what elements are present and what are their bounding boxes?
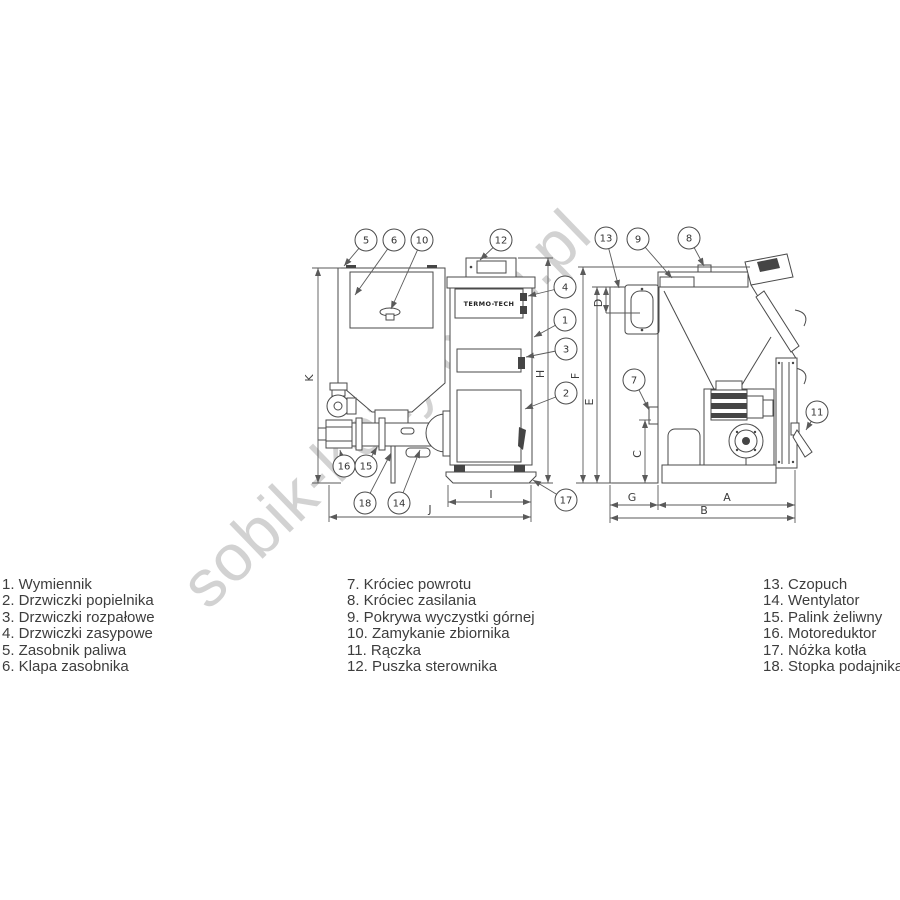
feeder-leg (391, 446, 395, 483)
callout-15: 15 (355, 447, 377, 477)
part-item-3: 3. Drzwiczki rozpałowe (2, 610, 155, 626)
callout-1: 1 (534, 309, 576, 337)
callout-13: 13 (595, 227, 619, 288)
dim-label-D: D (592, 299, 605, 307)
part-item-13: 13. Czopuch (763, 577, 900, 593)
part-item-14: 14. Wentylator (763, 593, 900, 609)
dim-label-H: H (534, 370, 547, 378)
fan-impeller (729, 424, 763, 458)
svg-text:17: 17 (560, 496, 573, 507)
brand-label: TERMO-TECH (464, 300, 515, 308)
boiler-foot (454, 465, 465, 472)
svg-text:9: 9 (635, 235, 641, 246)
svg-text:3: 3 (563, 345, 569, 356)
svg-text:18: 18 (359, 499, 372, 510)
part-item-1: 1. Wymiennik (2, 577, 155, 593)
svg-text:11: 11 (811, 408, 824, 419)
sloped-door (756, 291, 799, 352)
svg-text:6: 6 (391, 236, 397, 247)
dim-label-F: F (569, 373, 582, 379)
control-panel (745, 254, 793, 285)
supply-stub (698, 265, 711, 272)
parts-list-column-3: 13. Czopuch14. Wentylator15. Palink żeli… (763, 577, 900, 675)
svg-text:2: 2 (563, 389, 569, 400)
part-item-4: 4. Drzwiczki zasypowe (2, 626, 155, 642)
dim-label-I: I (489, 488, 492, 501)
boiler-side-view (610, 254, 812, 483)
cleanout-cover (660, 277, 694, 287)
svg-text:15: 15 (360, 462, 373, 473)
callout-11: 11 (806, 401, 828, 430)
fuel-hopper (338, 268, 445, 412)
boiler-foot (514, 465, 525, 472)
callout-12: 12 (480, 229, 512, 260)
dim-label-E: E (583, 398, 596, 405)
parts-list-column-1: 1. Wymiennik2. Drzwiczki popielnika3. Dr… (2, 577, 155, 675)
part-item-9: 9. Pokrywa wyczystki górnej (347, 610, 535, 626)
svg-text:1: 1 (562, 316, 568, 327)
svg-text:13: 13 (600, 234, 613, 245)
controller-box (466, 258, 516, 277)
fan-motor (711, 381, 773, 420)
parts-list-column-2: 7. Króciec powrotu8. Króciec zasilania9.… (347, 577, 535, 675)
part-item-8: 8. Króciec zasilania (347, 593, 535, 609)
dim-label-K: K (303, 374, 316, 382)
svg-text:16: 16 (338, 462, 351, 473)
svg-text:7: 7 (631, 376, 637, 387)
boiler-top-band (447, 277, 535, 288)
part-item-7: 7. Króciec powrotu (347, 577, 535, 593)
svg-text:4: 4 (562, 283, 568, 294)
return-connector (649, 407, 658, 424)
part-item-12: 12. Puszka sterownika (347, 659, 535, 675)
callout-5: 5 (344, 229, 377, 266)
svg-text:10: 10 (416, 236, 429, 247)
side-base (662, 465, 776, 483)
callout-2: 2 (525, 382, 577, 409)
part-item-2: 2. Drzwiczki popielnika (2, 593, 155, 609)
front-door-frame (776, 358, 797, 468)
callout-9: 9 (627, 228, 672, 278)
boiler-base (446, 472, 536, 483)
dim-label-C: C (631, 450, 644, 458)
chimney-flue (625, 285, 659, 334)
part-item-18: 18. Stopka podajnika (763, 659, 900, 675)
svg-text:5: 5 (363, 236, 369, 247)
boiler-spec-page: sobik-kotly.com.pl (0, 0, 900, 900)
part-item-17: 17. Nóżka kotła (763, 643, 900, 659)
dim-label-B: B (700, 504, 708, 517)
svg-text:14: 14 (393, 499, 406, 510)
svg-text:12: 12 (495, 236, 508, 247)
part-item-5: 5. Zasobnik paliwa (2, 643, 155, 659)
callout-17: 17 (533, 480, 577, 511)
dim-label-G: G (628, 491, 637, 504)
part-item-15: 15. Palink żeliwny (763, 610, 900, 626)
dim-label-J: J (427, 503, 431, 516)
callout-3: 3 (526, 338, 577, 360)
part-item-11: 11. Rączka (347, 643, 535, 659)
part-item-16: 16. Motoreduktor (763, 626, 900, 642)
dim-label-A: A (723, 491, 731, 504)
svg-text:8: 8 (686, 234, 692, 245)
boiler-front-view: TERMO-TECH (318, 258, 536, 483)
callout-16: 16 (333, 450, 355, 477)
part-item-10: 10. Zamykanie zbiornika (347, 626, 535, 642)
technical-diagram: TERMO-TECH (0, 0, 900, 560)
callout-8: 8 (678, 227, 704, 266)
part-item-6: 6. Klapa zasobnika (2, 659, 155, 675)
